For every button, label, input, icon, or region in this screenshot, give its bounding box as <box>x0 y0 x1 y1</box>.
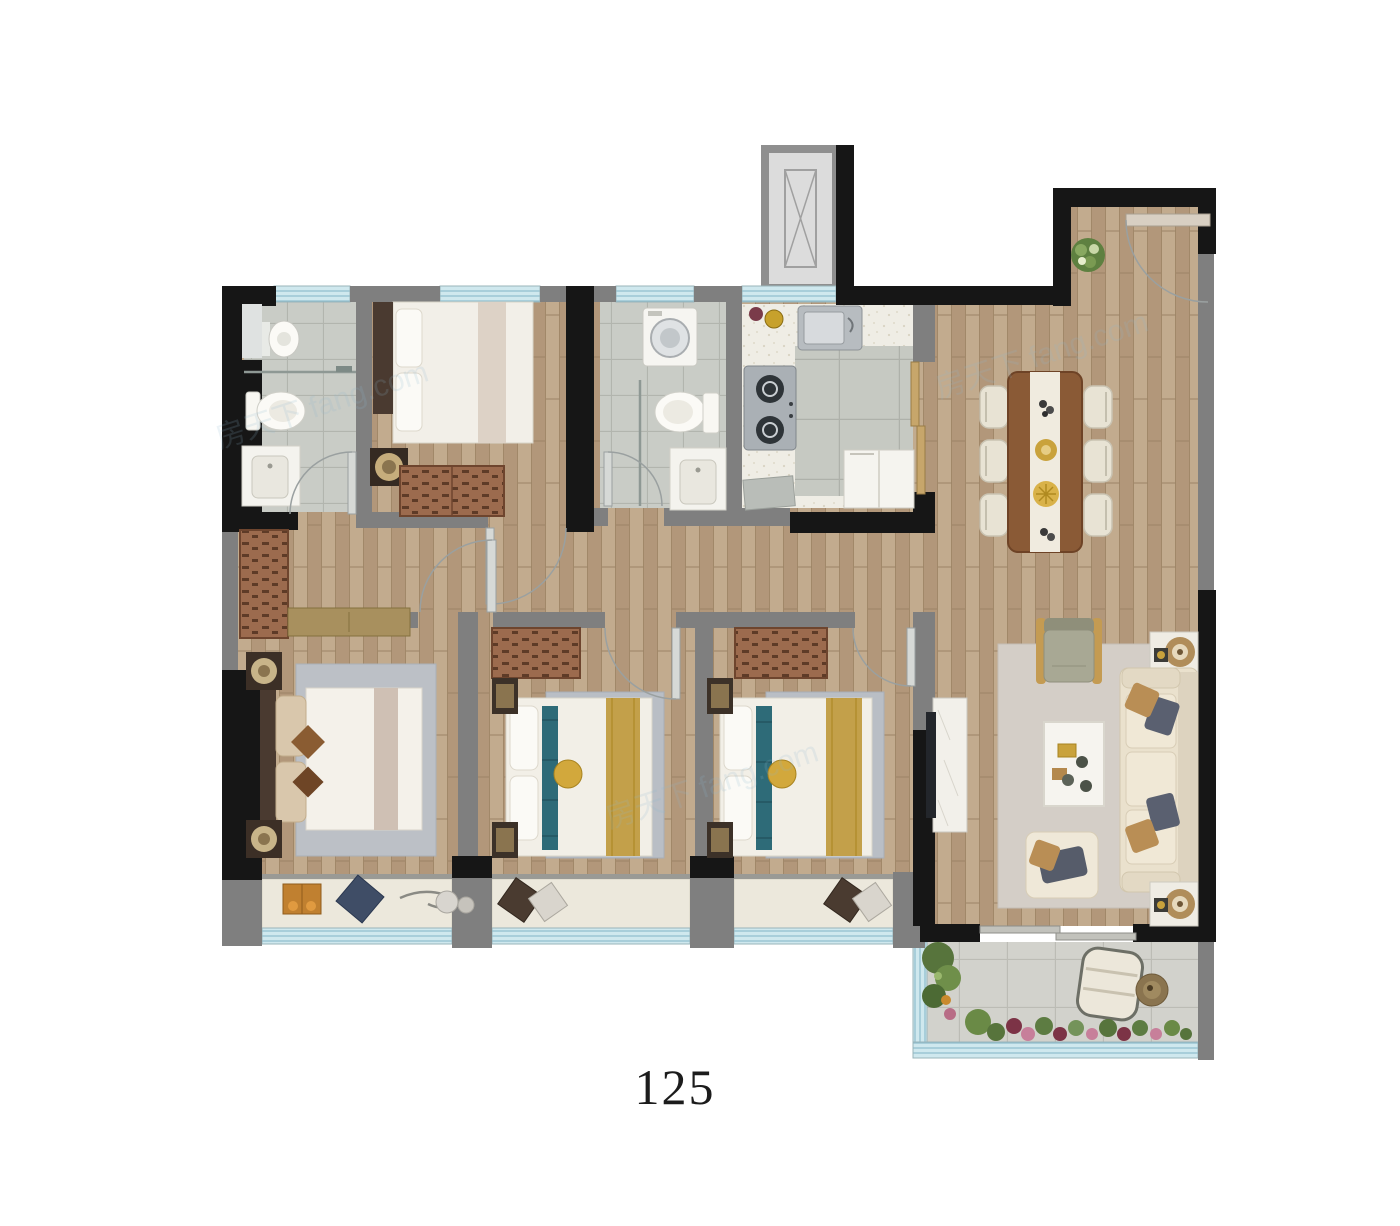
window-bedroom1 <box>440 286 540 302</box>
nightstand-master-top <box>246 652 282 690</box>
dining-area <box>980 372 1112 552</box>
condiment-jar <box>749 307 763 321</box>
dining-chairs-left <box>980 386 1008 536</box>
bathroom1-niche <box>242 304 262 358</box>
armchair-top <box>1036 618 1102 684</box>
elevator-shaft <box>761 145 840 292</box>
entry-plant <box>1071 238 1105 272</box>
window-bathroom2 <box>616 286 694 302</box>
toilet-2 <box>655 392 719 433</box>
area-label: 125 <box>610 1058 740 1116</box>
fridge <box>844 450 914 508</box>
vanity-sink-2 <box>670 448 726 510</box>
armchair-bottom <box>1026 832 1098 898</box>
balcony-side-table <box>1136 974 1168 1006</box>
wardrobe-bedroom3 <box>735 628 827 678</box>
bed-bedroom2 <box>506 698 652 856</box>
condiment-plate <box>765 310 783 328</box>
hallway-closet <box>240 530 288 638</box>
window-bathroom1 <box>274 286 350 302</box>
bay-window-master <box>262 928 452 944</box>
kitchen-mat <box>743 476 795 510</box>
bay-window-bedroom3 <box>734 928 893 944</box>
sofa <box>1120 668 1198 892</box>
toilet <box>246 392 305 430</box>
tv-console <box>926 698 967 832</box>
wardrobe-bedroom1 <box>400 466 504 516</box>
floor-plan-rendering <box>0 0 1400 1226</box>
lounge-chair <box>1076 946 1145 1022</box>
vanity-sink <box>242 446 300 506</box>
window-kitchen <box>742 286 836 302</box>
washing-machine <box>643 308 697 366</box>
tv <box>926 712 936 818</box>
balcony-window-bottom <box>913 1042 1198 1058</box>
bed-bedroom1 <box>373 302 533 443</box>
dining-table <box>1008 372 1082 552</box>
balcony-sliding-door <box>980 926 1136 940</box>
kitchen-sink <box>798 306 862 350</box>
bed-bedroom3 <box>720 698 872 856</box>
coffee-table <box>1044 722 1104 806</box>
nightstand-master-bottom <box>246 820 282 858</box>
side-table-bottom <box>1150 882 1198 926</box>
bay-window-bedroom2 <box>492 928 690 944</box>
wardrobe-bedroom2 <box>492 628 580 678</box>
floor-plan-page: 125 房天下 fang.com 房天下 fang.com 房天下 fang.c… <box>0 0 1400 1226</box>
dining-chairs-right <box>1084 386 1112 536</box>
stove <box>744 366 796 450</box>
wash-basin <box>262 321 299 357</box>
